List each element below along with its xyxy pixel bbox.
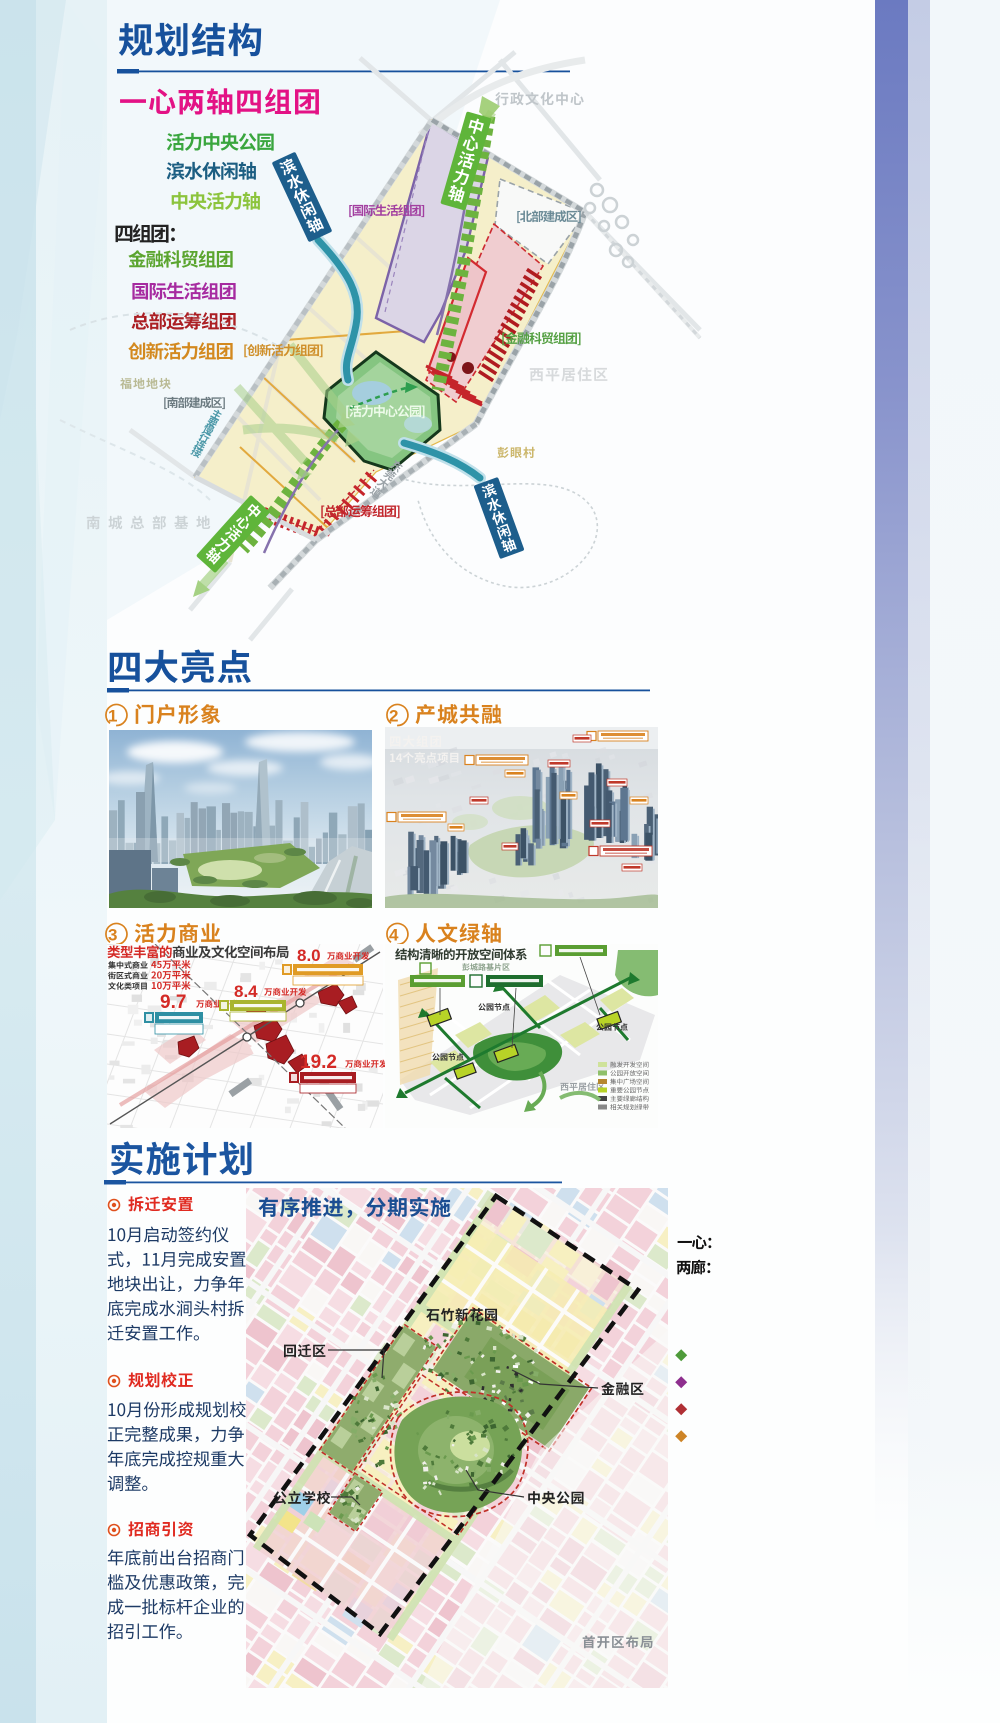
svg-text:3: 3 — [108, 926, 117, 945]
svg-text:9.7: 9.7 — [160, 992, 186, 1013]
svg-text:8.4: 8.4 — [234, 982, 258, 1001]
svg-text:2: 2 — [389, 707, 398, 726]
svg-text:1: 1 — [108, 707, 117, 726]
svg-text:8.0: 8.0 — [297, 946, 321, 965]
svg-text:4: 4 — [389, 926, 399, 945]
svg-text:19.2: 19.2 — [300, 1052, 337, 1073]
